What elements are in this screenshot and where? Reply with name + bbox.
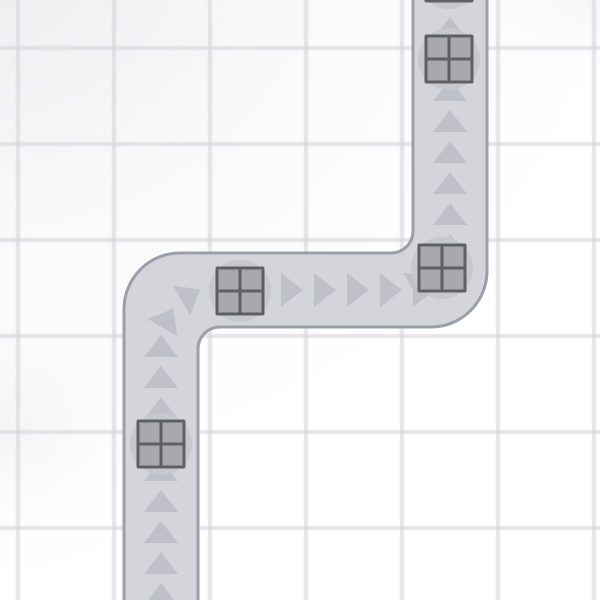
crate[interactable]: [130, 413, 192, 475]
crate-cell: [242, 293, 262, 313]
crate-cell: [219, 270, 239, 290]
crate-cell: [451, 61, 471, 81]
game-board[interactable]: [0, 0, 600, 600]
crate-cell: [428, 61, 448, 81]
crate[interactable]: [411, 237, 473, 299]
crate-frame: [425, 0, 474, 3]
crate-cell: [219, 293, 239, 313]
crate[interactable]: [418, 28, 480, 90]
crate-cell: [163, 423, 183, 443]
crate-cell: [444, 270, 464, 290]
crate-cell: [163, 446, 183, 466]
crate-cell: [421, 270, 441, 290]
crate-cell: [140, 423, 160, 443]
crate-cell: [451, 38, 471, 58]
crate-cell: [428, 38, 448, 58]
crate-cell: [421, 247, 441, 267]
game-viewport: [0, 0, 600, 600]
crate-cell: [140, 446, 160, 466]
crate-cell: [444, 247, 464, 267]
crate[interactable]: [209, 260, 271, 322]
crate-cell: [242, 270, 262, 290]
